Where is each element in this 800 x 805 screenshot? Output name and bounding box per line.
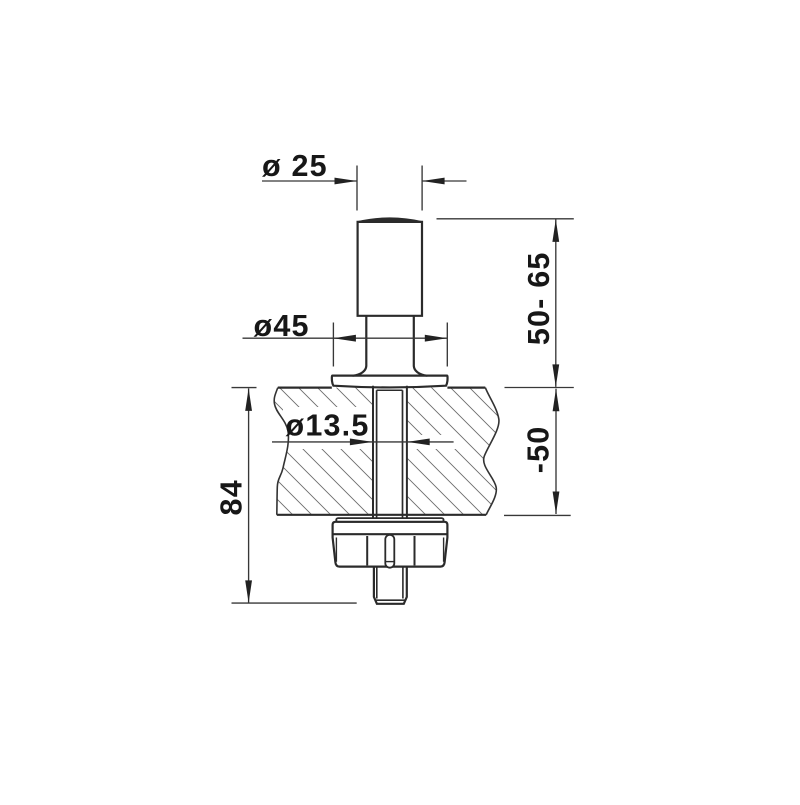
svg-text:84: 84 <box>215 479 249 515</box>
svg-text:ø13.5: ø13.5 <box>286 409 370 443</box>
svg-text:ø 25: ø 25 <box>262 149 328 183</box>
svg-text:50- 65: 50- 65 <box>522 251 556 345</box>
svg-text:-50: -50 <box>522 426 556 474</box>
svg-text:ø45: ø45 <box>254 309 310 343</box>
